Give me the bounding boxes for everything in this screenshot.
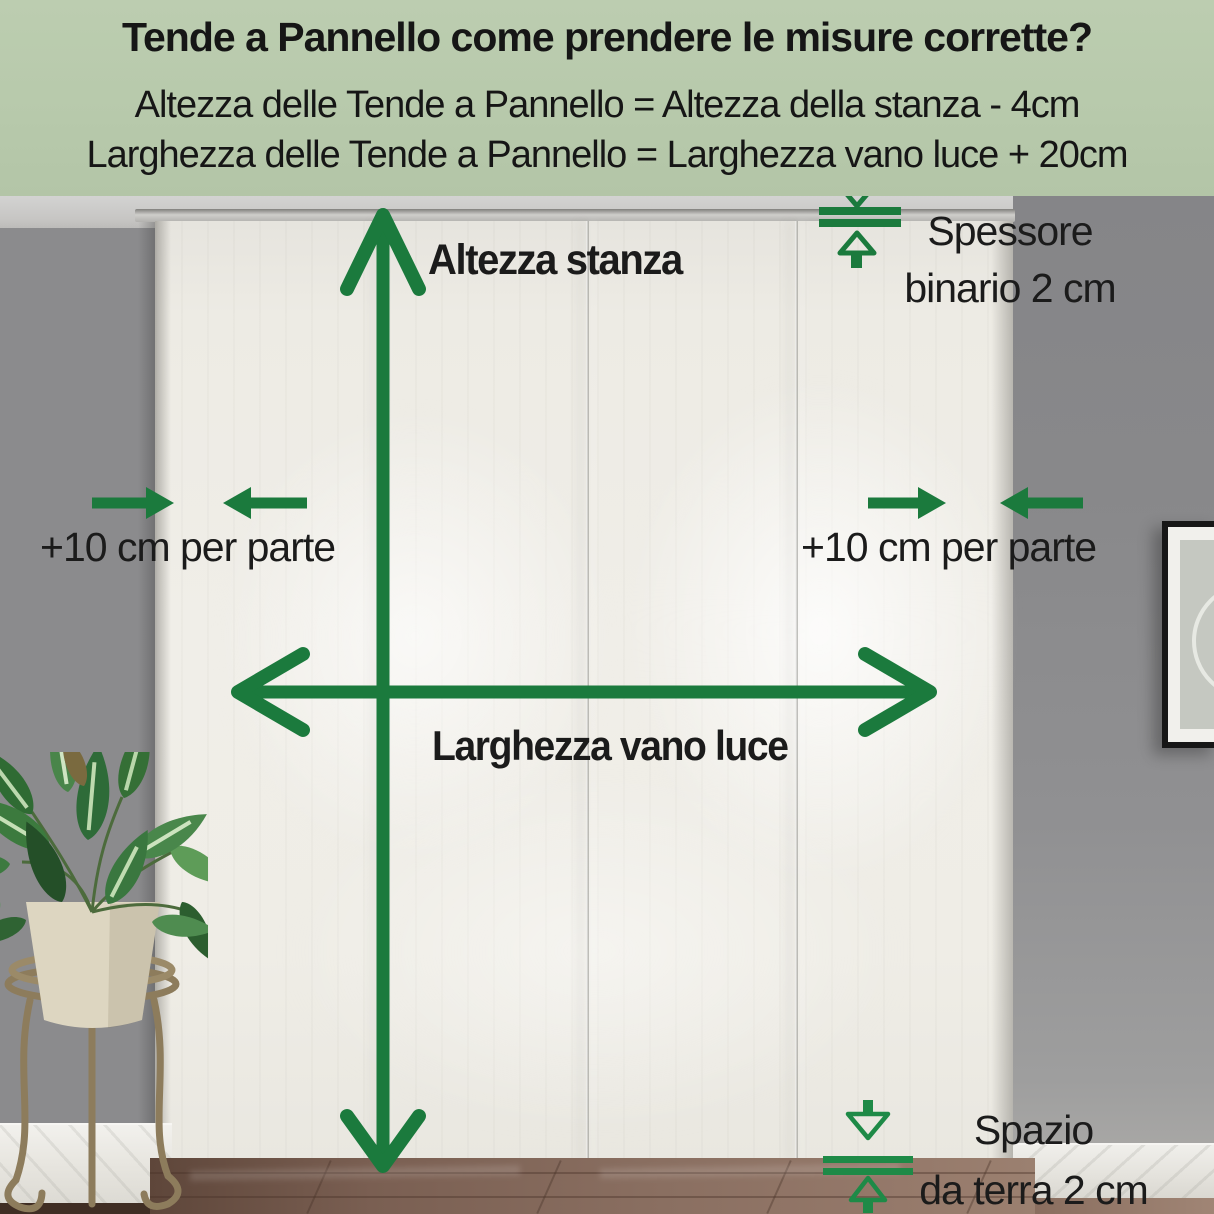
- floor-gap-label: Spazio da terra 2 cm: [900, 1100, 1167, 1214]
- width-formula-text: Larghezza delle Tende a Pannello = Largh…: [0, 134, 1214, 177]
- picture-circle-motif: [1192, 582, 1214, 700]
- panel-seam: [586, 221, 589, 1160]
- panel-seam: [795, 221, 798, 1160]
- header-band: Tende a Pannello come prendere le misure…: [0, 0, 1214, 196]
- infographic-panel-curtain-measuring: Tende a Pannello come prendere le misure…: [0, 0, 1214, 1214]
- height-formula-text: Altezza delle Tende a Pannello = Altezza…: [0, 84, 1214, 127]
- right-margin-label: +10 cm per parte: [801, 524, 1096, 571]
- picture-frame: [1162, 521, 1214, 748]
- room-height-label: Altezza stanza: [428, 236, 682, 285]
- curtain-right-edge: [991, 221, 1013, 1160]
- panel-seam: [379, 221, 382, 1160]
- left-margin-label: +10 cm per parte: [40, 524, 335, 571]
- panel-curtain: [155, 221, 1013, 1163]
- picture-mat: [1168, 527, 1214, 742]
- track-thickness-line2: binario 2 cm: [880, 260, 1140, 317]
- opening-width-label: Larghezza vano luce: [432, 722, 788, 770]
- floor-gap-line2: da terra 2 cm: [900, 1160, 1167, 1214]
- track-thickness-label: Spessore binario 2 cm: [880, 203, 1140, 317]
- window-light-patch: [275, 761, 915, 1141]
- page-title: Tende a Pannello come prendere le misure…: [0, 14, 1214, 61]
- picture-art: [1180, 540, 1214, 729]
- plant-on-stand: [0, 752, 208, 1214]
- track-thickness-line1: Spessore: [880, 203, 1140, 260]
- floor-gap-line1: Spazio: [900, 1100, 1167, 1160]
- pot-shading: [108, 902, 160, 1028]
